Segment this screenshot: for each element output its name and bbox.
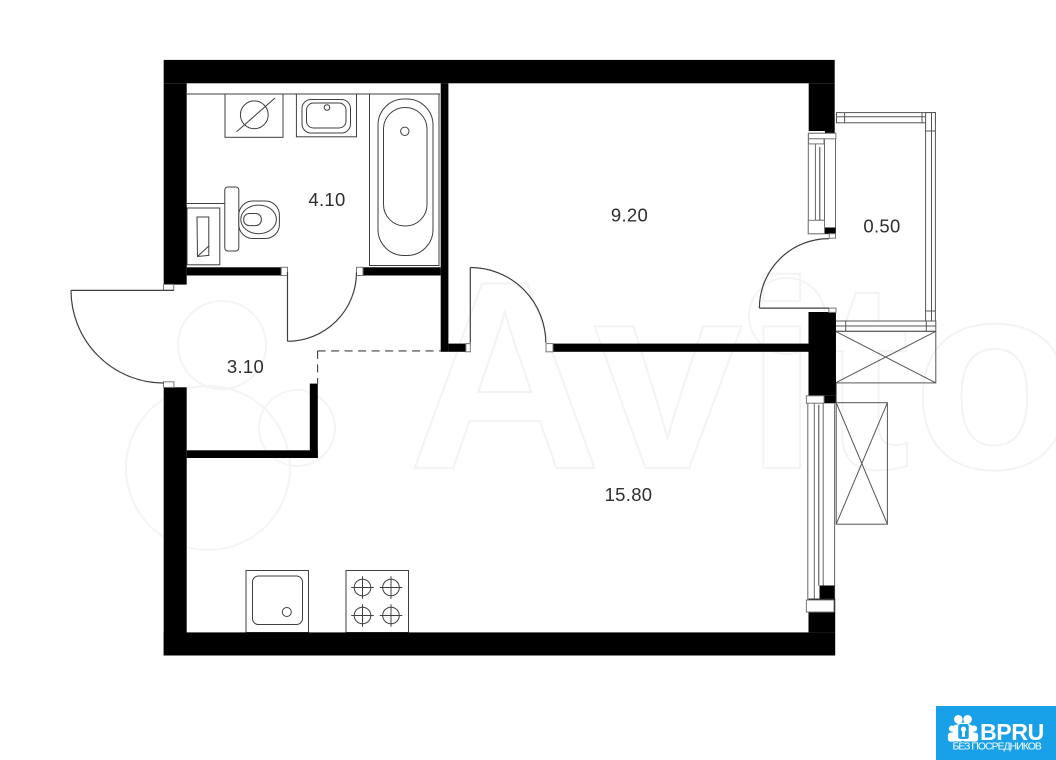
svg-text:БЕЗ ПОСРЕДНИКОВ: БЕЗ ПОСРЕДНИКОВ (953, 742, 1042, 753)
svg-text:3.10: 3.10 (227, 356, 264, 377)
svg-text:Avito: Avito (408, 225, 1056, 525)
svg-text:0.50: 0.50 (863, 216, 900, 237)
svg-text:9.20: 9.20 (611, 205, 648, 226)
svg-text:15.80: 15.80 (605, 484, 653, 505)
svg-text:4.10: 4.10 (308, 189, 345, 210)
